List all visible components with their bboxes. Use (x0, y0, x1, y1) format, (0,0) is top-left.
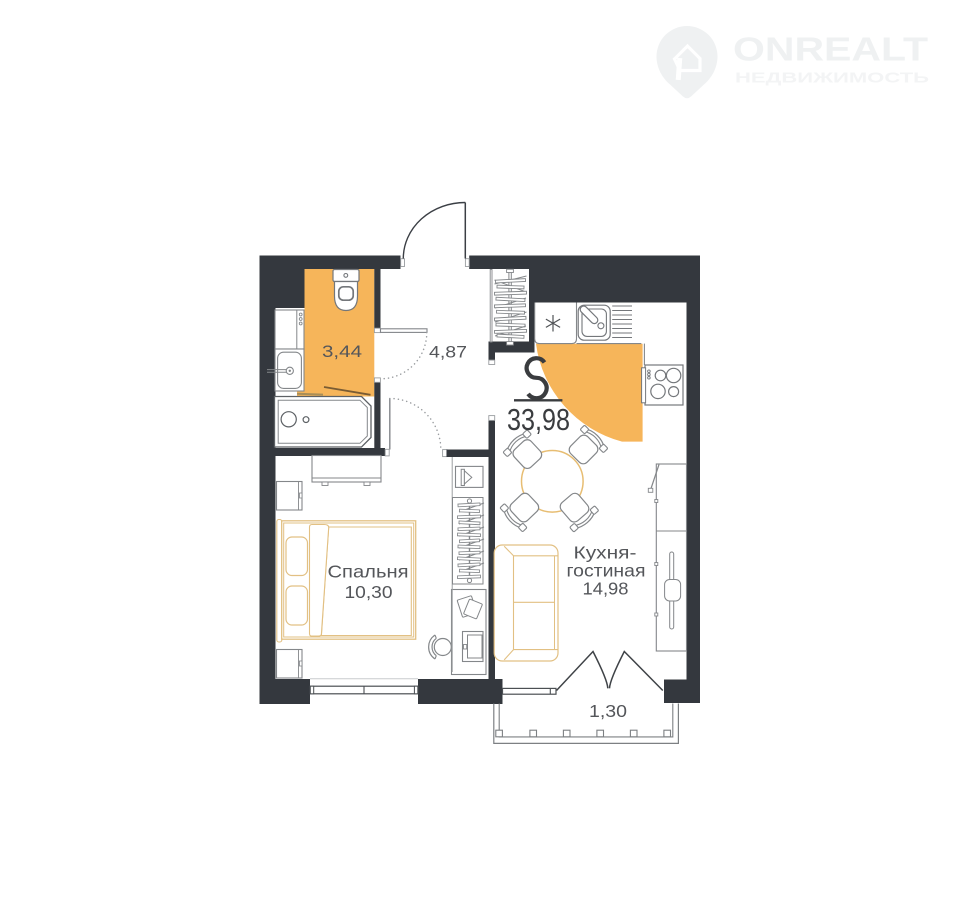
svg-text:1,30: 1,30 (589, 701, 627, 721)
svg-text:ONREALT: ONREALT (733, 31, 928, 68)
svg-text:33,98: 33,98 (507, 403, 570, 437)
svg-text:4,87: 4,87 (429, 343, 467, 362)
svg-text:Кухня-: Кухня- (574, 543, 637, 563)
svg-text:НЕДВИЖИМОСТЬ: НЕДВИЖИМОСТЬ (735, 70, 929, 87)
svg-text:10,30: 10,30 (345, 582, 393, 602)
svg-text:3,44: 3,44 (322, 342, 362, 361)
svg-text:Спальня: Спальня (328, 562, 409, 582)
svg-text:14,98: 14,98 (583, 579, 629, 599)
svg-text:гостиная: гостиная (567, 561, 646, 581)
